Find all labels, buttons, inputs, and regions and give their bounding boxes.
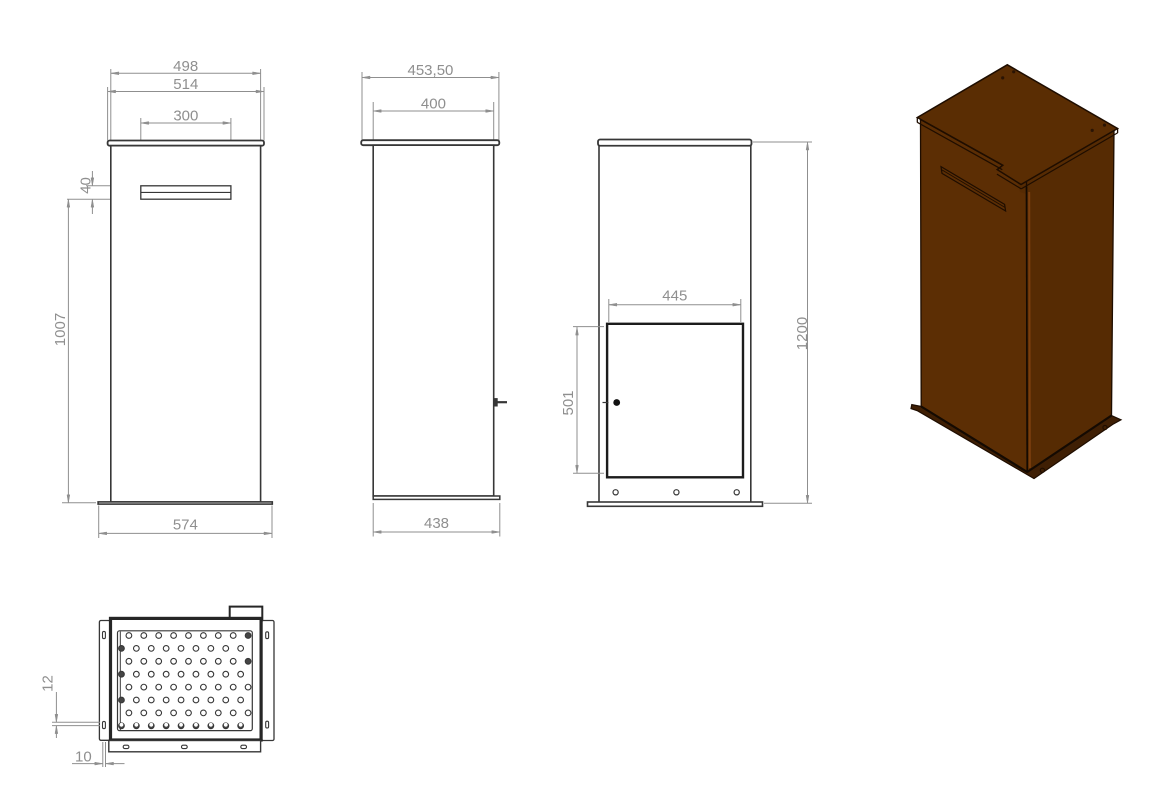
- svg-text:1200: 1200: [794, 317, 811, 350]
- svg-text:501: 501: [560, 390, 577, 415]
- svg-text:438: 438: [424, 515, 449, 532]
- svg-text:453,50: 453,50: [408, 62, 454, 79]
- svg-text:1007: 1007: [52, 313, 69, 346]
- svg-text:574: 574: [173, 517, 198, 534]
- svg-text:300: 300: [173, 108, 198, 125]
- svg-text:400: 400: [421, 96, 446, 113]
- svg-text:514: 514: [173, 76, 198, 93]
- svg-text:498: 498: [173, 58, 198, 75]
- svg-text:10: 10: [75, 749, 92, 766]
- svg-text:12: 12: [39, 675, 56, 692]
- svg-text:445: 445: [662, 288, 687, 305]
- svg-text:40: 40: [78, 177, 95, 194]
